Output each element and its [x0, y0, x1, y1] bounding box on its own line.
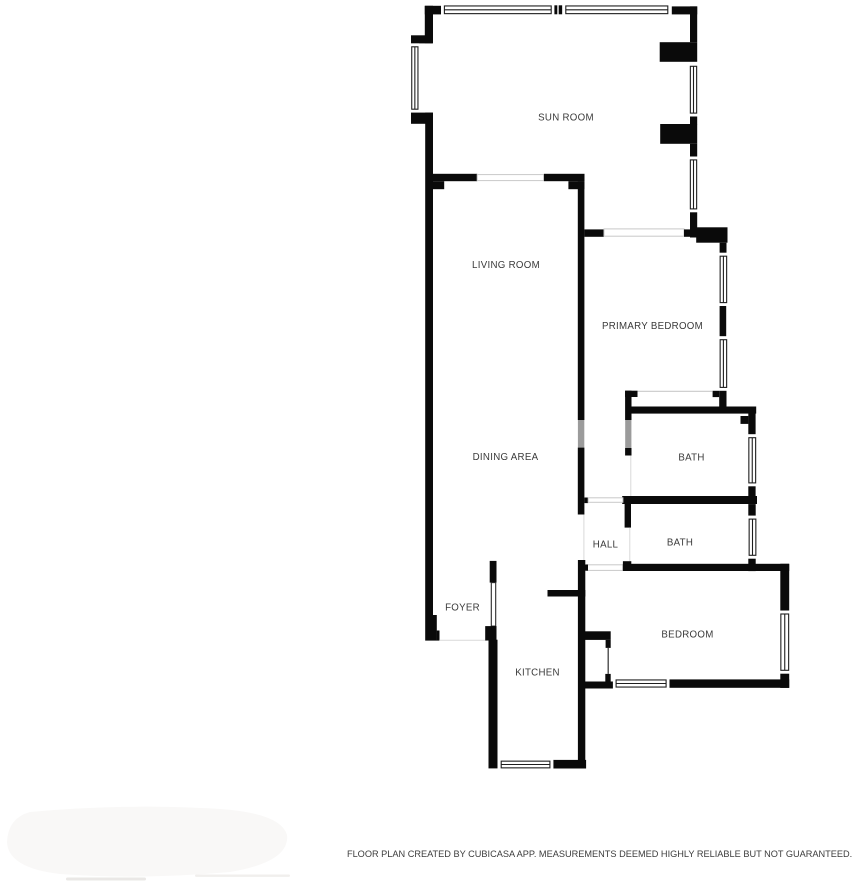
svg-text:FLOOR PLAN CREATED BY CUBICASA: FLOOR PLAN CREATED BY CUBICASA APP. MEAS… [347, 849, 852, 859]
svg-text:HALL: HALL [593, 540, 619, 551]
svg-text:FOYER: FOYER [445, 603, 480, 614]
svg-text:LIVING ROOM: LIVING ROOM [472, 260, 540, 271]
svg-text:BATH: BATH [678, 453, 704, 464]
svg-text:KITCHEN: KITCHEN [515, 668, 560, 679]
svg-text:SUN ROOM: SUN ROOM [538, 113, 594, 124]
svg-text:PRIMARY BEDROOM: PRIMARY BEDROOM [602, 321, 703, 332]
svg-text:BATH: BATH [667, 538, 693, 549]
svg-text:DINING AREA: DINING AREA [473, 452, 539, 463]
svg-text:BEDROOM: BEDROOM [661, 630, 713, 641]
